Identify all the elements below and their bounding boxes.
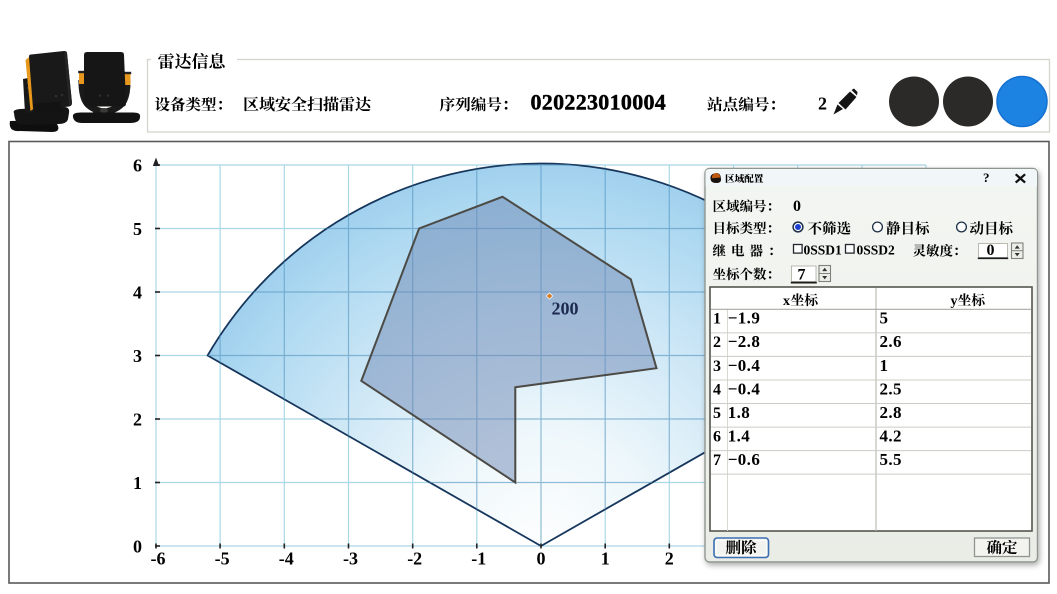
svg-text:−0.6: −0.6 bbox=[728, 450, 761, 469]
svg-text:7: 7 bbox=[713, 452, 721, 469]
svg-text:020223010004: 020223010004 bbox=[531, 90, 667, 115]
svg-text:4.2: 4.2 bbox=[880, 426, 902, 445]
svg-text:-5: -5 bbox=[215, 549, 230, 569]
svg-text:6: 6 bbox=[133, 155, 142, 175]
svg-text:−0.4: −0.4 bbox=[728, 379, 761, 398]
svg-text:7: 7 bbox=[798, 267, 806, 284]
svg-text:5: 5 bbox=[713, 405, 721, 422]
svg-text:4: 4 bbox=[713, 381, 721, 398]
svg-text:3: 3 bbox=[133, 346, 142, 366]
svg-text:5.5: 5.5 bbox=[880, 450, 902, 469]
svg-text:5: 5 bbox=[880, 309, 889, 328]
svg-text:−1.9: −1.9 bbox=[728, 309, 761, 328]
svg-text:3: 3 bbox=[713, 358, 721, 375]
svg-text:1: 1 bbox=[601, 549, 610, 569]
svg-text:2: 2 bbox=[818, 94, 827, 114]
svg-text:1: 1 bbox=[713, 311, 721, 328]
svg-text:−2.8: −2.8 bbox=[728, 332, 761, 351]
svg-text:2.6: 2.6 bbox=[880, 332, 902, 351]
svg-text:0: 0 bbox=[537, 549, 546, 569]
svg-text:−0.4: −0.4 bbox=[728, 356, 761, 375]
svg-text:1: 1 bbox=[133, 473, 142, 493]
svg-text:1.4: 1.4 bbox=[728, 426, 751, 445]
svg-text:-1: -1 bbox=[471, 549, 486, 569]
svg-text:x: x bbox=[783, 294, 790, 309]
svg-text:-4: -4 bbox=[279, 549, 294, 569]
svg-text:6: 6 bbox=[713, 428, 721, 445]
svg-text:5: 5 bbox=[133, 219, 142, 239]
svg-text:2: 2 bbox=[133, 409, 142, 429]
svg-text:0: 0 bbox=[133, 536, 142, 556]
svg-text:200: 200 bbox=[552, 299, 579, 319]
svg-text:4: 4 bbox=[133, 282, 142, 302]
svg-text:0: 0 bbox=[793, 198, 801, 215]
svg-text:?: ? bbox=[983, 170, 990, 185]
svg-text:0: 0 bbox=[987, 242, 995, 259]
svg-text:0SSD1: 0SSD1 bbox=[804, 243, 843, 258]
svg-text:-6: -6 bbox=[151, 549, 166, 569]
svg-text:2.8: 2.8 bbox=[880, 403, 902, 422]
svg-text:2: 2 bbox=[665, 549, 674, 569]
svg-text:-2: -2 bbox=[407, 549, 422, 569]
svg-text:y: y bbox=[951, 294, 958, 309]
svg-text:1.8: 1.8 bbox=[728, 403, 750, 422]
svg-text:-3: -3 bbox=[343, 549, 358, 569]
svg-text:1: 1 bbox=[880, 356, 889, 375]
svg-text:2: 2 bbox=[713, 334, 721, 351]
svg-text:2.5: 2.5 bbox=[880, 379, 902, 398]
svg-text:0SSD2: 0SSD2 bbox=[857, 243, 896, 258]
